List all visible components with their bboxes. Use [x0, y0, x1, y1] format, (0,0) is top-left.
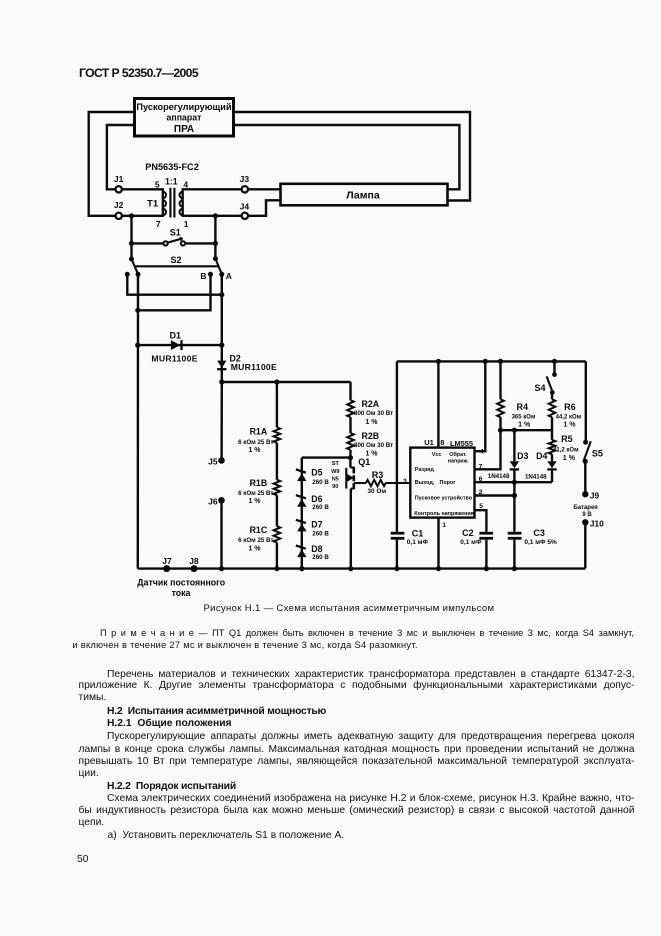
svg-text:J4: J4 — [240, 202, 250, 212]
svg-text:Разряд: Разряд — [415, 467, 435, 473]
svg-text:Обрат.: Обрат. — [449, 451, 467, 458]
svg-text:7: 7 — [156, 219, 161, 229]
svg-text:R5: R5 — [561, 434, 573, 444]
svg-text:6 кОм 25 Вт: 6 кОм 25 Вт — [238, 537, 273, 544]
svg-text:0,1 мФ: 0,1 мФ — [460, 539, 482, 546]
svg-text:R1B: R1B — [250, 478, 268, 488]
svg-text:260 В: 260 В — [312, 554, 329, 561]
svg-text:J10: J10 — [590, 519, 604, 529]
svg-text:260 В: 260 В — [312, 530, 329, 537]
svg-text:1N4148: 1N4148 — [488, 473, 510, 480]
svg-text:0,1 мФ: 0,1 мФ — [407, 539, 429, 546]
svg-text:R2B: R2B — [362, 431, 380, 441]
svg-text:S4: S4 — [534, 383, 545, 393]
svg-text:1:1: 1:1 — [165, 177, 178, 187]
svg-text:90: 90 — [332, 484, 338, 490]
svg-text:J5: J5 — [208, 456, 218, 466]
svg-text:J8: J8 — [189, 556, 199, 566]
svg-text:30 Ом: 30 Ом — [368, 488, 387, 495]
svg-text:U1: U1 — [424, 438, 434, 447]
svg-text:J3: J3 — [240, 174, 250, 184]
svg-text:5: 5 — [479, 503, 483, 510]
svg-text:1 %: 1 % — [365, 419, 378, 426]
svg-text:4: 4 — [183, 180, 188, 190]
svg-text:800 Ом 30 Вт: 800 Ом 30 Вт — [354, 442, 393, 449]
svg-text:R3: R3 — [372, 470, 384, 480]
svg-text:C2: C2 — [462, 528, 474, 538]
svg-text:R6: R6 — [564, 402, 576, 412]
svg-text:6 кОм 25 Вт: 6 кОм 25 Вт — [238, 439, 273, 446]
svg-text:LM555: LM555 — [450, 439, 473, 448]
svg-text:MUR1100E: MUR1100E — [231, 362, 277, 372]
svg-text:C3: C3 — [533, 528, 545, 538]
svg-text:J9: J9 — [590, 490, 600, 500]
svg-text:R1C: R1C — [250, 525, 268, 535]
svg-text:S5: S5 — [592, 449, 603, 459]
svg-text:T1: T1 — [147, 199, 159, 210]
svg-text:Датчик постоянного: Датчик постоянного — [137, 578, 225, 588]
svg-text:365 кОм: 365 кОм — [512, 414, 536, 420]
svg-text:D3: D3 — [517, 451, 528, 461]
svg-text:J6: J6 — [208, 496, 218, 506]
svg-text:R1A: R1A — [250, 427, 268, 437]
svg-text:B: B — [200, 271, 206, 281]
svg-text:41,2 кОм: 41,2 кОм — [553, 448, 579, 454]
svg-text:ПРА: ПРА — [174, 124, 194, 135]
svg-text:Батарея: Батарея — [573, 505, 598, 511]
svg-text:ST: ST — [332, 461, 340, 467]
svg-text:4: 4 — [480, 449, 484, 456]
svg-text:Пускорегулирующий: Пускорегулирующий — [136, 102, 232, 112]
svg-text:тока: тока — [172, 588, 191, 598]
svg-text:J2: J2 — [114, 200, 124, 210]
svg-text:1: 1 — [442, 522, 446, 529]
svg-text:Контроль напряжения: Контроль напряжения — [414, 511, 474, 517]
svg-text:1 %: 1 % — [248, 546, 261, 553]
svg-text:аппарат: аппарат — [167, 113, 203, 123]
svg-text:S2: S2 — [170, 255, 181, 265]
svg-text:44,2 кОм: 44,2 кОм — [556, 414, 582, 420]
svg-text:Порог: Порог — [440, 480, 457, 486]
svg-text:D7: D7 — [311, 520, 322, 530]
svg-text:260 В: 260 В — [312, 479, 329, 486]
svg-text:D1: D1 — [170, 330, 181, 340]
svg-text:Q1: Q1 — [358, 457, 370, 467]
svg-text:800 Ом 30 Вт: 800 Ом 30 Вт — [354, 410, 393, 417]
svg-text:3: 3 — [403, 478, 407, 485]
svg-text:R4: R4 — [517, 402, 529, 412]
svg-text:9 В: 9 В — [582, 512, 592, 518]
svg-text:D4: D4 — [536, 451, 547, 461]
svg-text:8: 8 — [440, 438, 444, 447]
svg-text:Выход,: Выход, — [415, 480, 435, 486]
svg-text:1 %: 1 % — [518, 421, 531, 428]
svg-text:1 %: 1 % — [563, 455, 576, 462]
svg-text:1 %: 1 % — [248, 498, 261, 505]
svg-text:MUR1100E: MUR1100E — [151, 354, 197, 364]
svg-text:D8: D8 — [311, 544, 322, 554]
svg-text:Пусковое устройство: Пусковое устройство — [415, 495, 473, 502]
svg-text:0,1 мФ 5%: 0,1 мФ 5% — [524, 539, 557, 546]
svg-text:260 В: 260 В — [312, 504, 329, 511]
svg-text:N5: N5 — [332, 476, 339, 482]
svg-text:A: A — [226, 271, 232, 281]
svg-text:C1: C1 — [412, 529, 424, 539]
svg-text:J1: J1 — [114, 174, 124, 184]
svg-text:D6: D6 — [311, 494, 322, 504]
svg-text:W9: W9 — [331, 469, 339, 475]
svg-text:J7: J7 — [162, 556, 172, 566]
svg-text:1 %: 1 % — [248, 447, 261, 454]
svg-text:D5: D5 — [311, 467, 322, 477]
svg-text:Vcc: Vcc — [432, 452, 442, 458]
svg-text:6 кОм 25 Вт: 6 кОм 25 Вт — [238, 490, 273, 497]
svg-text:R2A: R2A — [362, 399, 380, 409]
svg-text:1N4148: 1N4148 — [525, 474, 547, 481]
svg-text:PN5635-FC2: PN5635-FC2 — [145, 162, 199, 172]
svg-text:1 %: 1 % — [563, 421, 576, 428]
svg-text:Лампа: Лампа — [346, 190, 380, 202]
svg-text:1: 1 — [184, 219, 189, 229]
svg-text:S1: S1 — [170, 227, 181, 237]
svg-text:напряж.: напряж. — [448, 459, 470, 465]
svg-text:5: 5 — [155, 180, 160, 190]
